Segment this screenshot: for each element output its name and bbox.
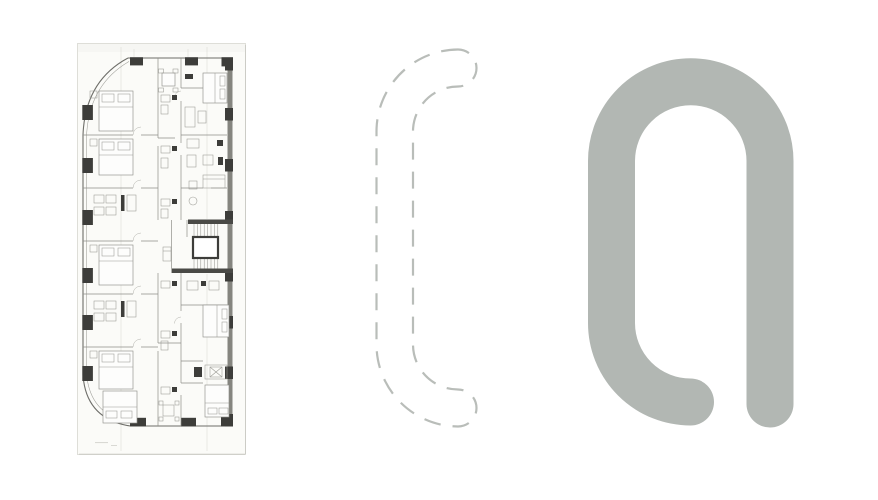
scan-smudge (78, 44, 245, 52)
scan-speck (111, 445, 117, 446)
elevator-shaft (193, 237, 218, 258)
diagram-canvas (0, 0, 878, 500)
floor-plan-panel (78, 44, 246, 455)
concept-diagram (0, 0, 878, 500)
scan-speck (95, 442, 108, 443)
